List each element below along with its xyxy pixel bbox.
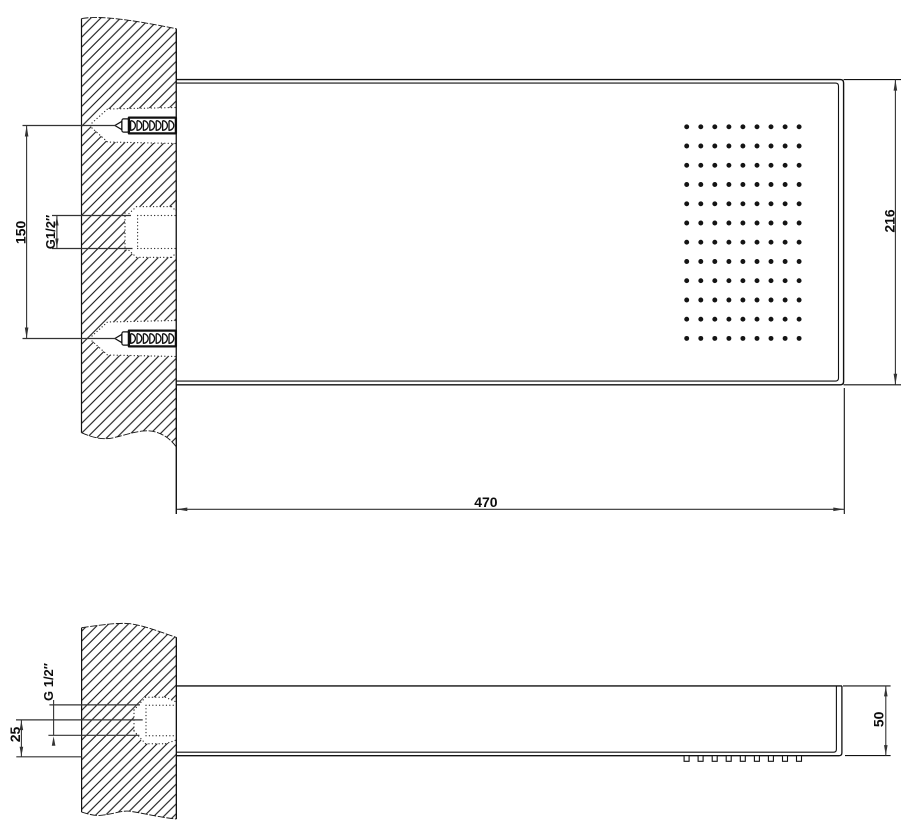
svg-text:25: 25 bbox=[7, 727, 23, 743]
svg-text:G 1/2″: G 1/2″ bbox=[41, 663, 56, 701]
svg-text:470: 470 bbox=[474, 494, 498, 510]
svg-text:G1/2″: G1/2″ bbox=[43, 215, 58, 249]
svg-text:50: 50 bbox=[871, 711, 887, 727]
svg-text:150: 150 bbox=[12, 221, 28, 245]
svg-text:216: 216 bbox=[881, 209, 897, 233]
